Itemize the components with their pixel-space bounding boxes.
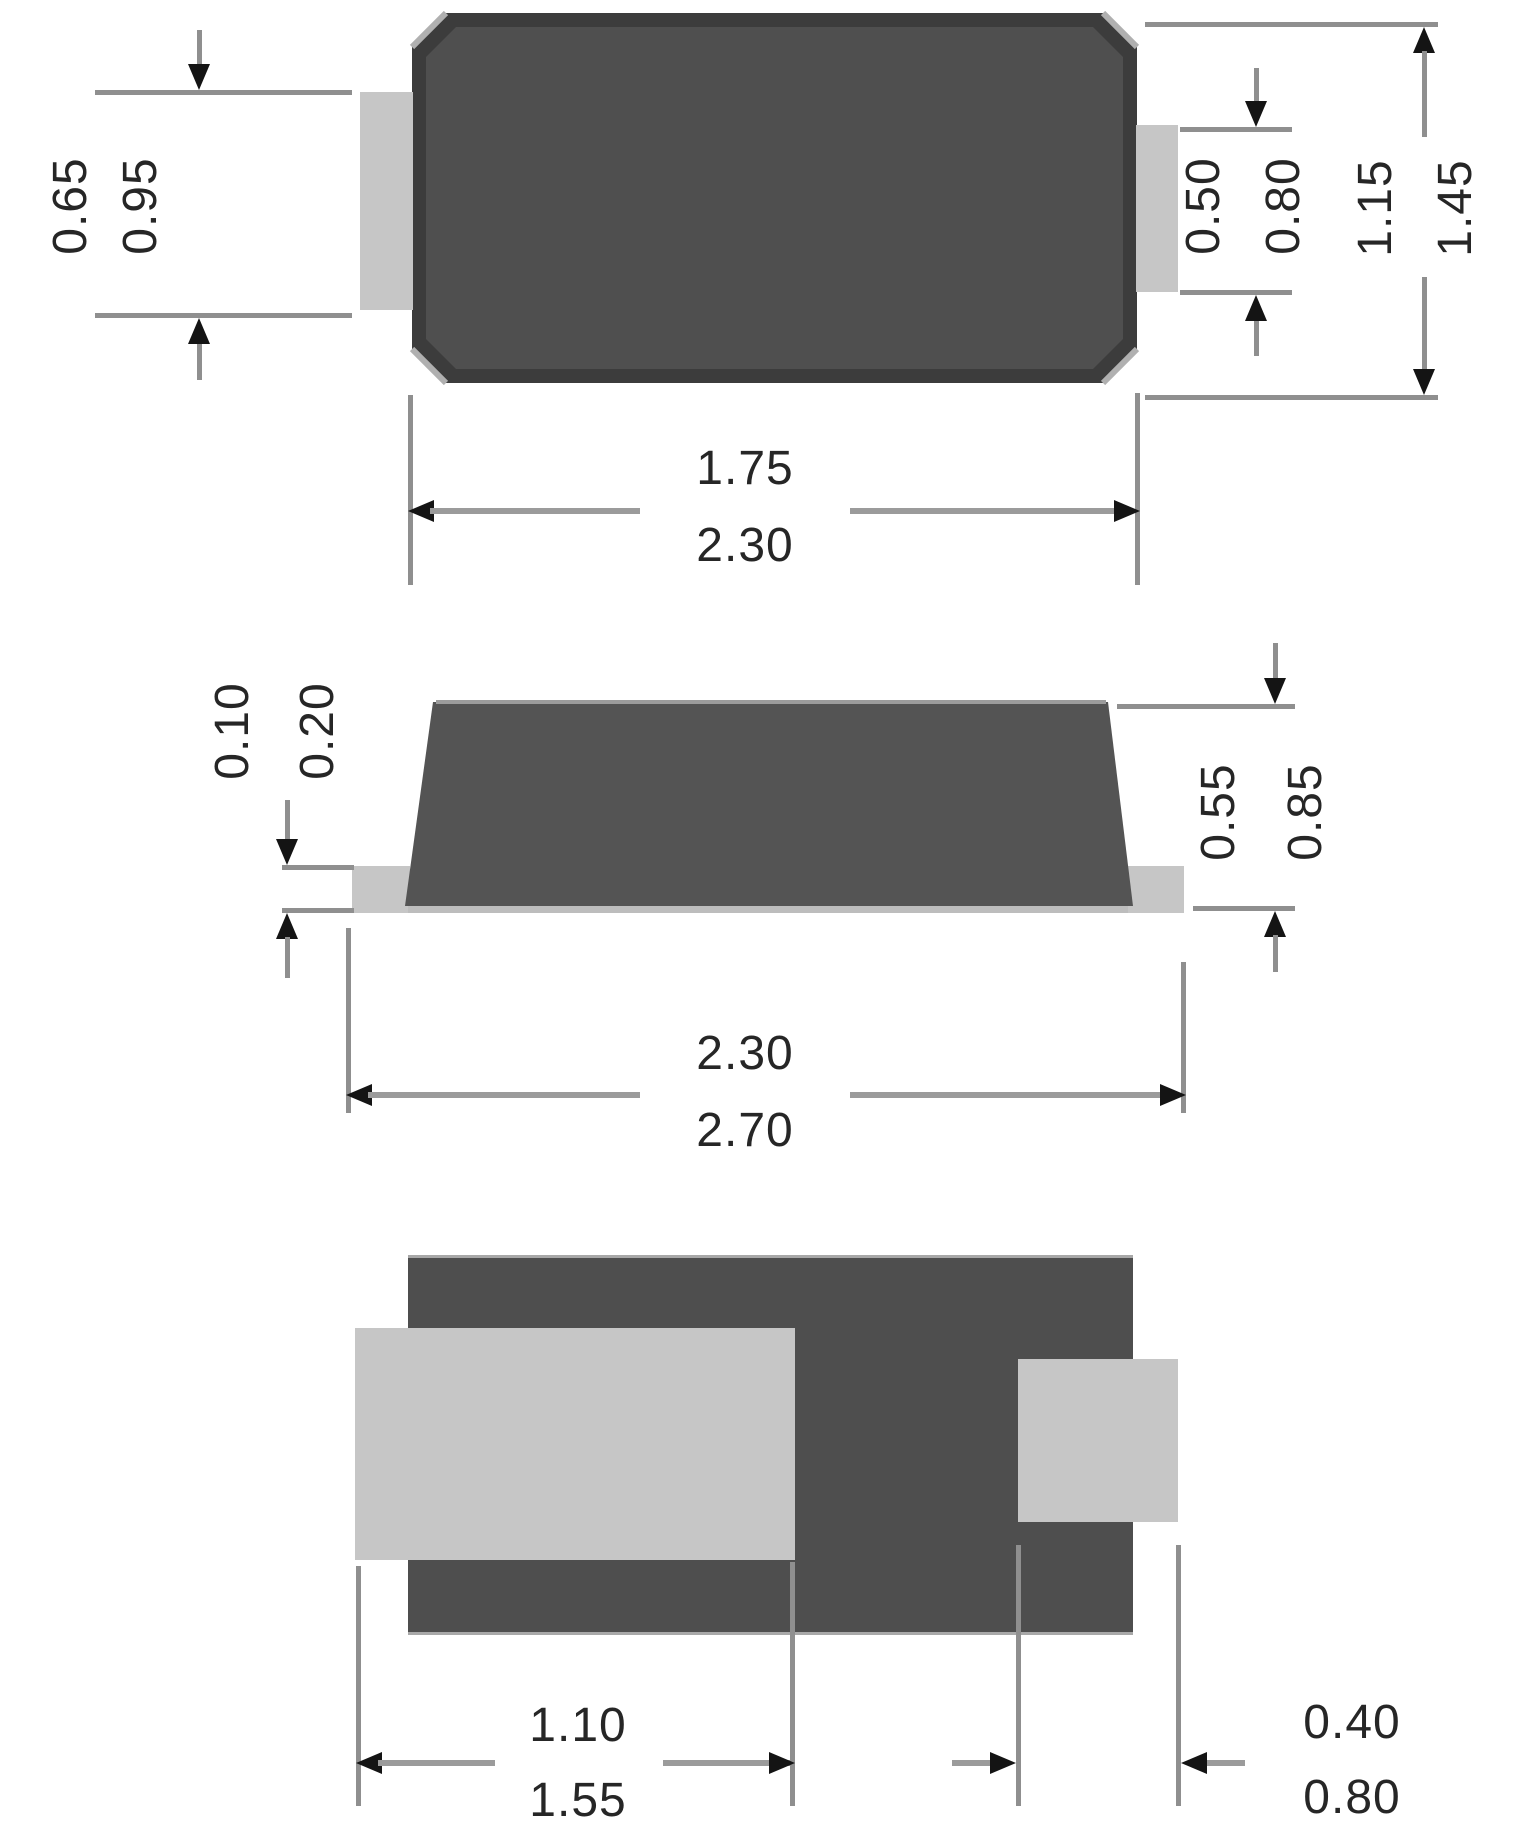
side-view-right-lead [1126,866,1184,913]
dim-line [430,508,640,514]
dim-label-tab-right-min: 0.50 [1176,136,1230,276]
dim-label-body-length-max: 2.30 [675,518,815,572]
dim-label-lead-thickness-min: 0.10 [205,661,259,801]
arrow-right-icon [1114,500,1140,522]
arrow-right-icon [990,1752,1016,1774]
ext-line [408,395,413,585]
dim-stem [1422,51,1427,137]
ext-line [1135,393,1140,585]
dim-line [368,1092,640,1098]
dim-stem [1273,935,1278,972]
dim-label-tab-right-max: 0.80 [1256,136,1310,276]
ext-line [1016,1545,1021,1806]
dim-label-body-width-min: 1.15 [1348,138,1402,278]
dim-stem [197,344,202,380]
dim-stem [285,937,290,978]
dim-line [1207,1760,1245,1766]
package-outline-drawing: 0.65 0.95 0.50 0.80 1.15 1.45 1.75 2.30 [0,0,1516,1836]
side-view-body-top-edge [436,700,1106,704]
ext-line [1145,22,1438,27]
ext-line [95,90,352,95]
arrow-down-icon [1413,369,1435,395]
dim-label-lead-thickness-max: 0.20 [290,661,344,801]
dim-line [850,508,1118,514]
dim-label-overall-length-min: 2.30 [675,1026,815,1080]
bottom-view-right-pad [1018,1359,1178,1522]
bottom-view-body-bottom-edge [408,1632,1133,1635]
dim-stem [285,800,290,841]
ext-line [1145,395,1438,400]
dim-label-body-width-max: 1.45 [1428,138,1482,278]
ext-line [282,865,354,870]
arrow-right-icon [769,1752,795,1774]
top-view-left-terminal [360,92,413,310]
ext-line [1180,127,1292,132]
arrow-up-icon [1245,295,1267,321]
dim-label-body-height-max: 0.85 [1278,742,1332,882]
dim-label-right-pad-max: 0.80 [1282,1770,1422,1824]
dim-stem [1422,277,1427,369]
dim-line [378,1760,495,1766]
top-view-body-fill [426,27,1123,369]
dim-label-body-height-min: 0.55 [1191,742,1245,882]
side-view-body [405,702,1133,906]
dim-line [952,1760,990,1766]
dim-stem [1254,321,1259,356]
ext-line [1117,704,1295,709]
arrow-up-icon [1264,911,1286,937]
dim-label-overall-length-max: 2.70 [675,1103,815,1157]
bottom-view-left-pad [355,1328,795,1560]
arrow-left-icon [1181,1752,1207,1774]
dim-stem [1273,643,1278,680]
side-view-left-lead [352,866,410,913]
dim-line [850,1092,1164,1098]
arrow-down-icon [188,64,210,90]
dim-stem [1254,68,1259,103]
dim-label-left-pad-max: 1.55 [508,1773,648,1827]
arrow-up-icon [1413,27,1435,53]
arrow-up-icon [188,318,210,344]
dim-label-right-pad-min: 0.40 [1282,1695,1422,1749]
arrow-right-icon [1160,1084,1186,1106]
arrow-up-icon [276,913,298,939]
ext-line [95,313,352,318]
dim-stem [197,30,202,66]
arrow-down-icon [1245,101,1267,127]
dim-label-tab-left-max: 0.95 [113,136,167,276]
ext-line [1180,290,1292,295]
top-view-right-terminal [1136,125,1178,292]
arrow-down-icon [276,839,298,865]
dim-label-tab-left-min: 0.65 [43,136,97,276]
dim-label-left-pad-min: 1.10 [508,1698,648,1752]
dim-label-body-length-min: 1.75 [675,441,815,495]
arrow-down-icon [1264,678,1286,704]
bottom-view-body-top-edge [408,1255,1133,1258]
